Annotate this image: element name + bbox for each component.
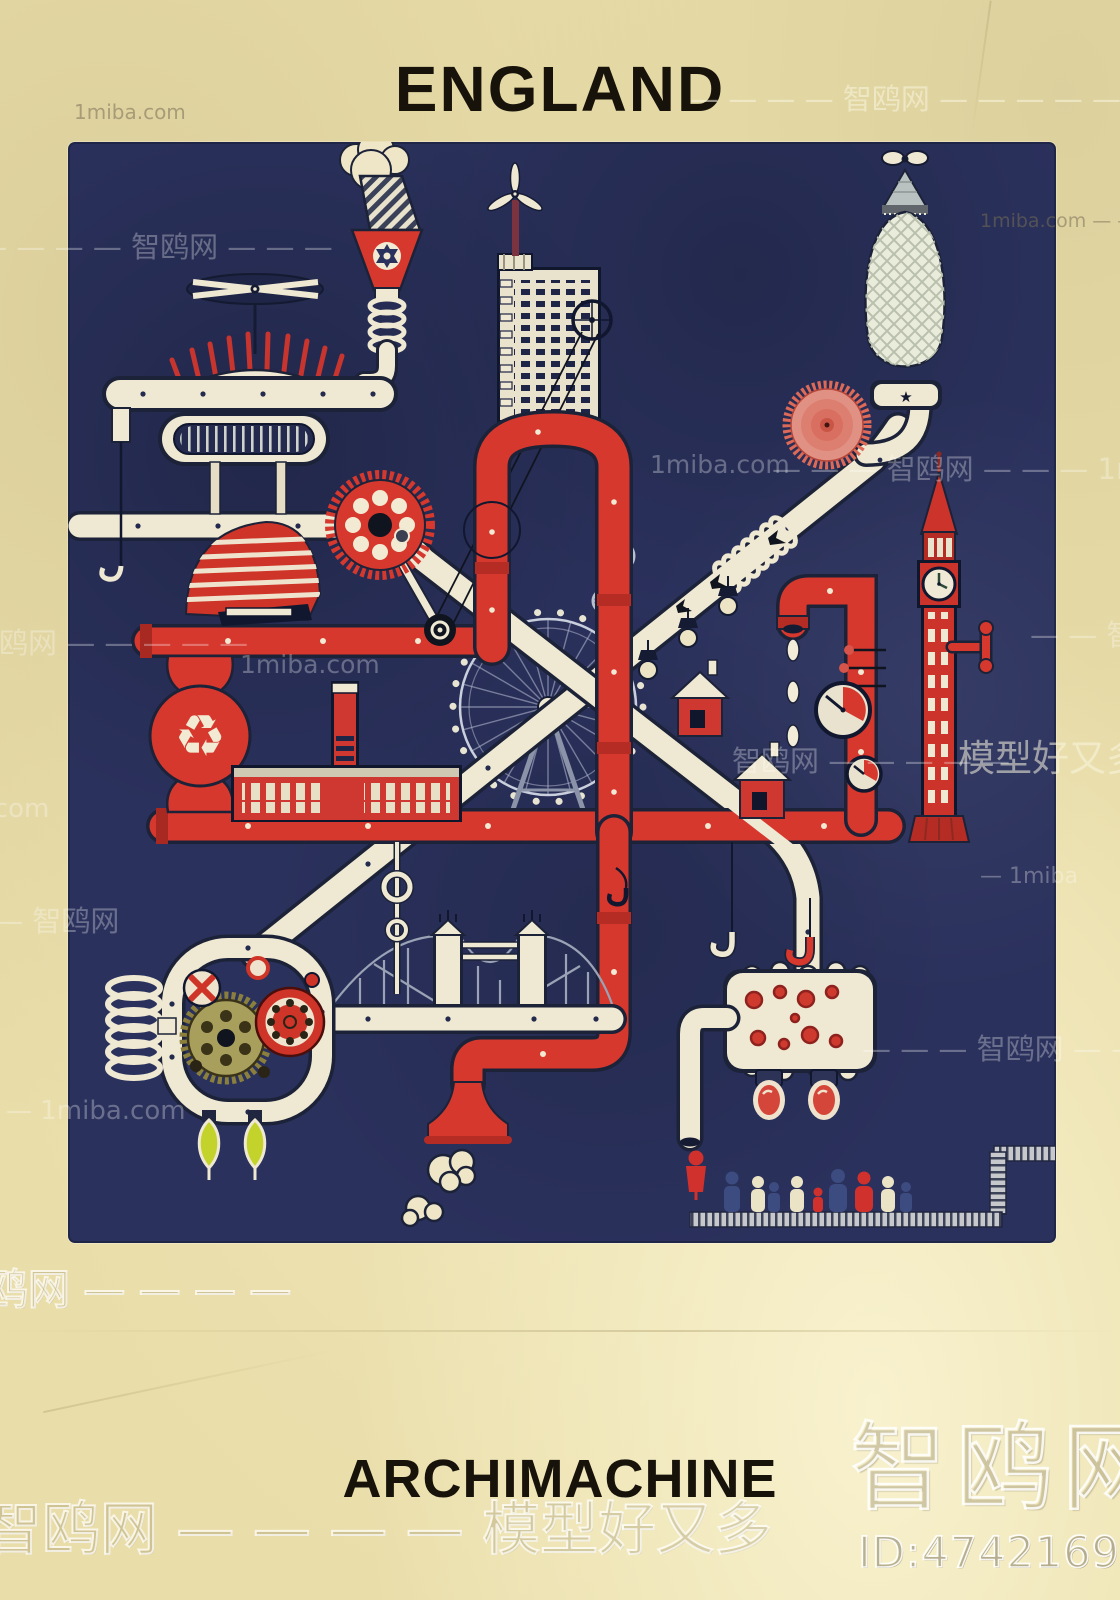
person bbox=[813, 1188, 823, 1213]
funnel bbox=[352, 230, 422, 290]
smoke-puffs bbox=[402, 1150, 475, 1226]
person bbox=[855, 1172, 873, 1213]
person bbox=[724, 1172, 740, 1213]
person bbox=[881, 1176, 895, 1212]
helicopter-rotor bbox=[187, 274, 323, 354]
pod-capsule bbox=[158, 412, 330, 514]
drip-figure bbox=[686, 1151, 706, 1201]
person bbox=[900, 1182, 912, 1212]
people-queue bbox=[724, 1169, 912, 1212]
paper-crease bbox=[0, 1330, 1120, 1332]
crank-handle bbox=[952, 621, 993, 673]
intake-duct bbox=[360, 176, 420, 230]
watermark-id: ID:474216943 bbox=[858, 1528, 1120, 1578]
star-icon: ★ bbox=[899, 388, 912, 406]
blob-lamps bbox=[753, 1070, 840, 1120]
factory-building bbox=[231, 681, 462, 822]
bridge-walkway bbox=[458, 942, 522, 960]
water-drips bbox=[787, 639, 799, 747]
conveyor bbox=[690, 1146, 1056, 1227]
horn-bell bbox=[424, 1082, 512, 1144]
loop-spring bbox=[108, 978, 160, 1078]
recycle-icon: ♻ bbox=[174, 702, 226, 770]
wind-turbine bbox=[486, 163, 544, 256]
watermark: 1miba.com bbox=[0, 794, 49, 824]
hook-cable bbox=[102, 442, 121, 579]
gherkin-tower: ★ bbox=[848, 151, 958, 410]
watermark: 鸥网 — — — — bbox=[0, 1256, 291, 1317]
person bbox=[751, 1176, 765, 1212]
processor-blob bbox=[680, 962, 877, 1147]
poster-title: ENGLAND bbox=[0, 52, 1120, 126]
illustration-panel: ♻ bbox=[68, 142, 1056, 1243]
person bbox=[768, 1182, 780, 1212]
poster: ENGLAND bbox=[0, 0, 1120, 1600]
tower-bridge bbox=[322, 910, 612, 1022]
paper-crease bbox=[43, 1349, 337, 1413]
funnel-spring-pipe bbox=[364, 288, 404, 382]
person bbox=[829, 1169, 847, 1212]
archimachine-illustration: ♻ bbox=[68, 142, 1056, 1243]
person bbox=[790, 1176, 804, 1212]
poster-subtitle: ARCHIMACHINE bbox=[0, 1448, 1120, 1510]
